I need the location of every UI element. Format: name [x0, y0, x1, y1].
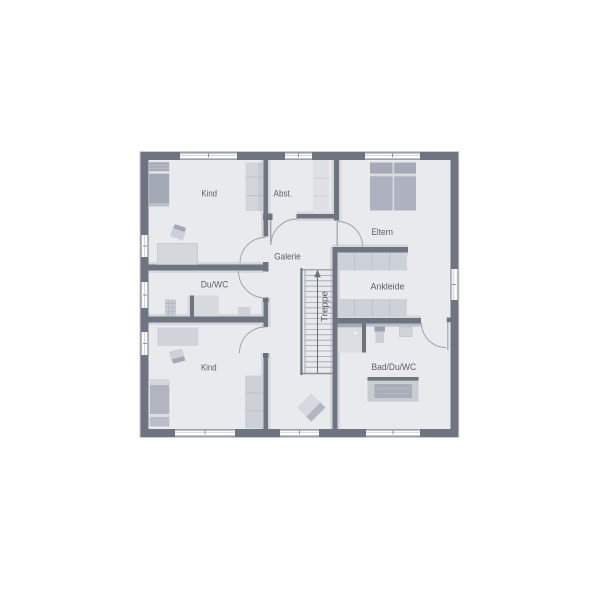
- svg-text:Kind: Kind: [201, 362, 217, 373]
- svg-text:Bad/Du/WC: Bad/Du/WC: [372, 362, 417, 373]
- svg-text:Galerie: Galerie: [274, 251, 301, 262]
- svg-text:Eltern: Eltern: [371, 227, 393, 238]
- svg-text:Kind: Kind: [201, 189, 217, 200]
- svg-text:Abst.: Abst.: [274, 188, 293, 199]
- svg-text:Ankleide: Ankleide: [371, 282, 405, 293]
- svg-text:Treppe: Treppe: [320, 291, 330, 322]
- svg-text:Du/WC: Du/WC: [201, 279, 229, 290]
